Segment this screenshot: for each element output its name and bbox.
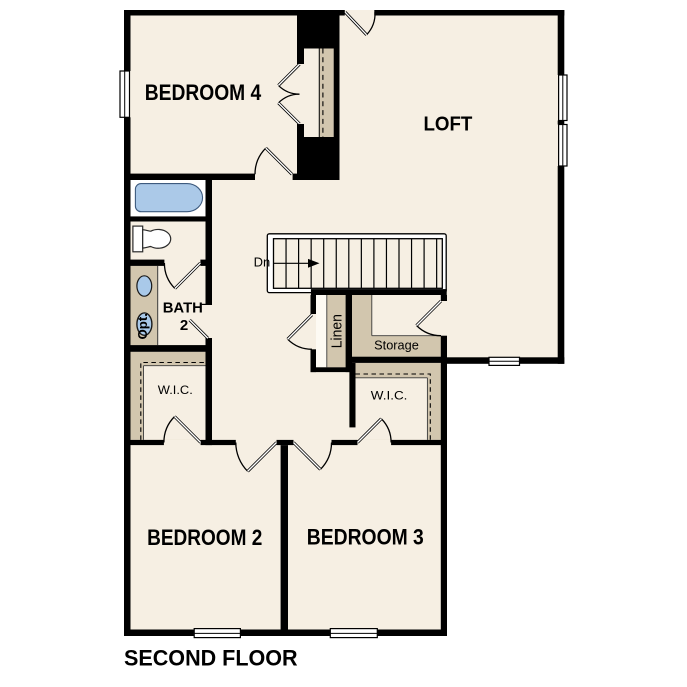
svg-text:BEDROOM 2: BEDROOM 2 [147, 525, 262, 550]
svg-text:SECOND FLOOR: SECOND FLOOR [124, 645, 298, 670]
svg-text:2: 2 [180, 317, 188, 334]
svg-text:Opt.: Opt. [135, 313, 150, 339]
svg-text:BEDROOM 3: BEDROOM 3 [307, 525, 424, 550]
svg-text:Storage: Storage [374, 339, 419, 353]
svg-text:W.I.C.: W.I.C. [158, 383, 193, 397]
svg-text:LOFT: LOFT [423, 113, 472, 136]
svg-text:Dn: Dn [254, 255, 271, 270]
svg-text:Linen: Linen [329, 314, 345, 348]
svg-text:BEDROOM 4: BEDROOM 4 [145, 80, 262, 105]
svg-text:W.I.C.: W.I.C. [371, 389, 408, 403]
svg-text:BATH: BATH [163, 300, 203, 317]
